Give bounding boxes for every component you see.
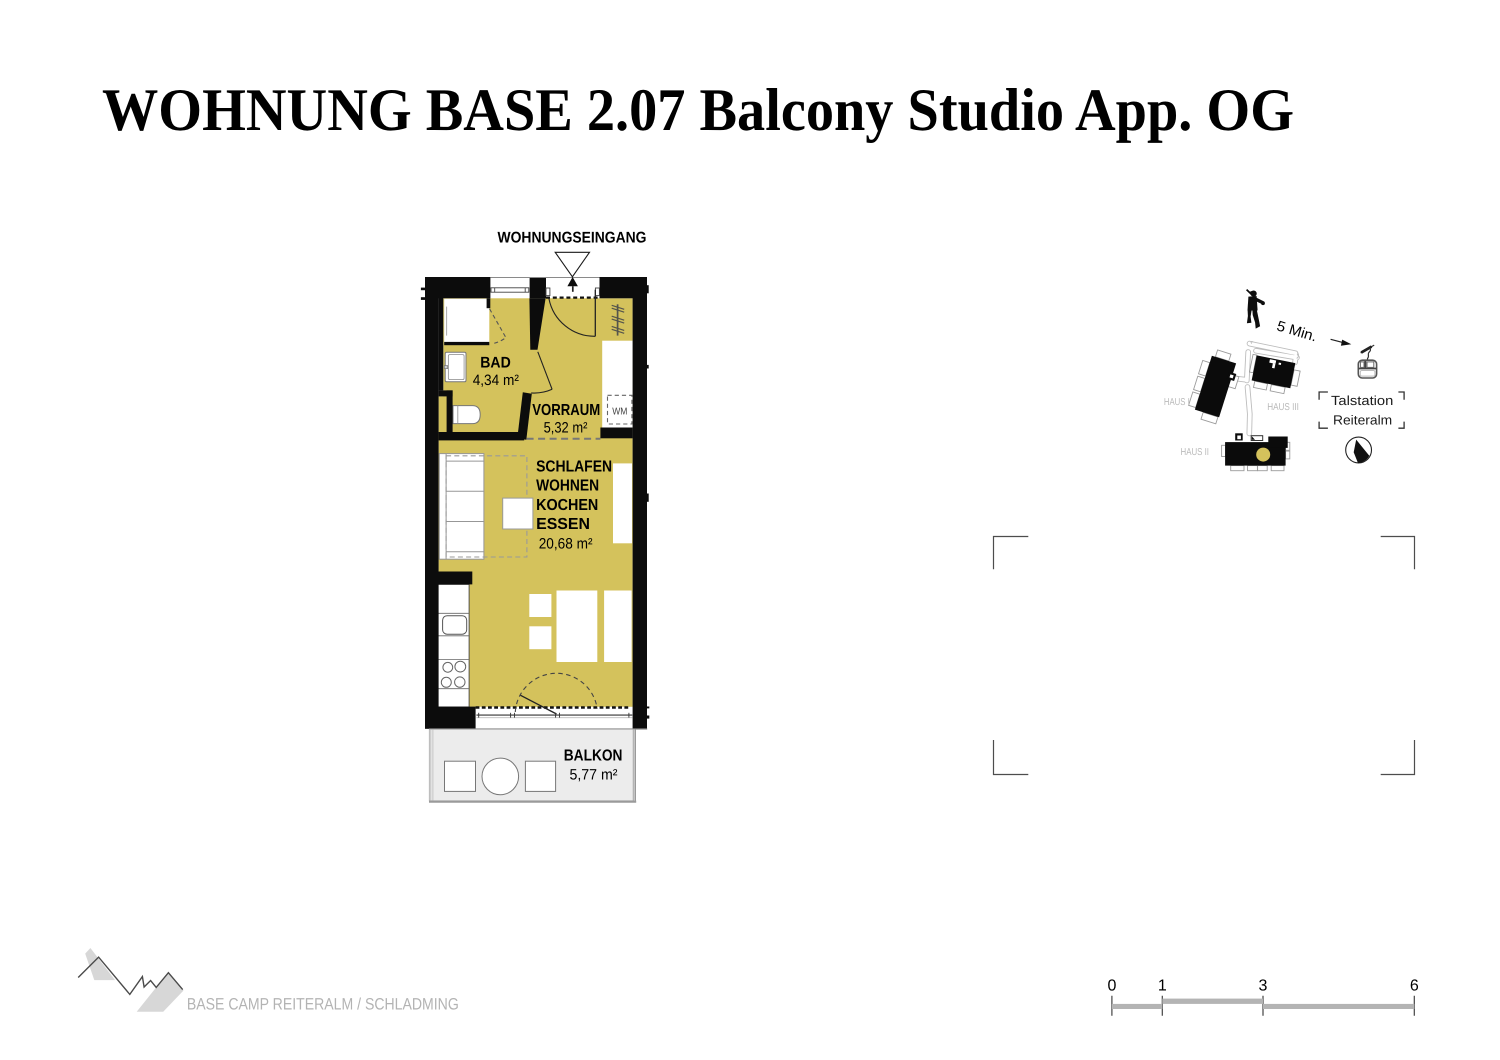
svg-text:WM: WM	[612, 407, 627, 418]
svg-text:5,32 m²: 5,32 m²	[544, 419, 588, 436]
svg-text:VORRAUM: VORRAUM	[532, 402, 600, 419]
svg-text:20,68 m²: 20,68 m²	[539, 535, 593, 552]
svg-text:5,77 m²: 5,77 m²	[569, 767, 617, 784]
svg-text:BALKON: BALKON	[564, 747, 623, 764]
svg-text:WOHNUNG BASE 2.07 Balcony Stud: WOHNUNG BASE 2.07 Balcony Studio App. OG	[102, 77, 1294, 144]
svg-text:HAUS I: HAUS I	[1164, 397, 1190, 408]
svg-text:KOCHEN: KOCHEN	[536, 497, 598, 514]
svg-text:BASE CAMP REITERALM / SCHLADMI: BASE CAMP REITERALM / SCHLADMING	[187, 996, 459, 1014]
svg-text:ESSEN: ESSEN	[536, 516, 590, 533]
svg-text:6: 6	[1410, 978, 1419, 995]
svg-text:BAD: BAD	[480, 354, 511, 371]
svg-text:Talstation: Talstation	[1331, 393, 1393, 408]
svg-text:1: 1	[1158, 978, 1167, 995]
svg-text:SCHLAFEN: SCHLAFEN	[536, 459, 612, 476]
svg-text:4,34 m²: 4,34 m²	[473, 372, 519, 389]
svg-text:Reiteralm: Reiteralm	[1333, 413, 1392, 428]
svg-text:WOHNEN: WOHNEN	[536, 478, 599, 495]
svg-text:HAUS II: HAUS II	[1181, 447, 1210, 458]
svg-text:0: 0	[1107, 978, 1116, 995]
svg-text:3: 3	[1259, 978, 1268, 995]
svg-text:WOHNUNGSEINGANG: WOHNUNGSEINGANG	[498, 229, 647, 246]
svg-text:HAUS III: HAUS III	[1267, 402, 1299, 413]
